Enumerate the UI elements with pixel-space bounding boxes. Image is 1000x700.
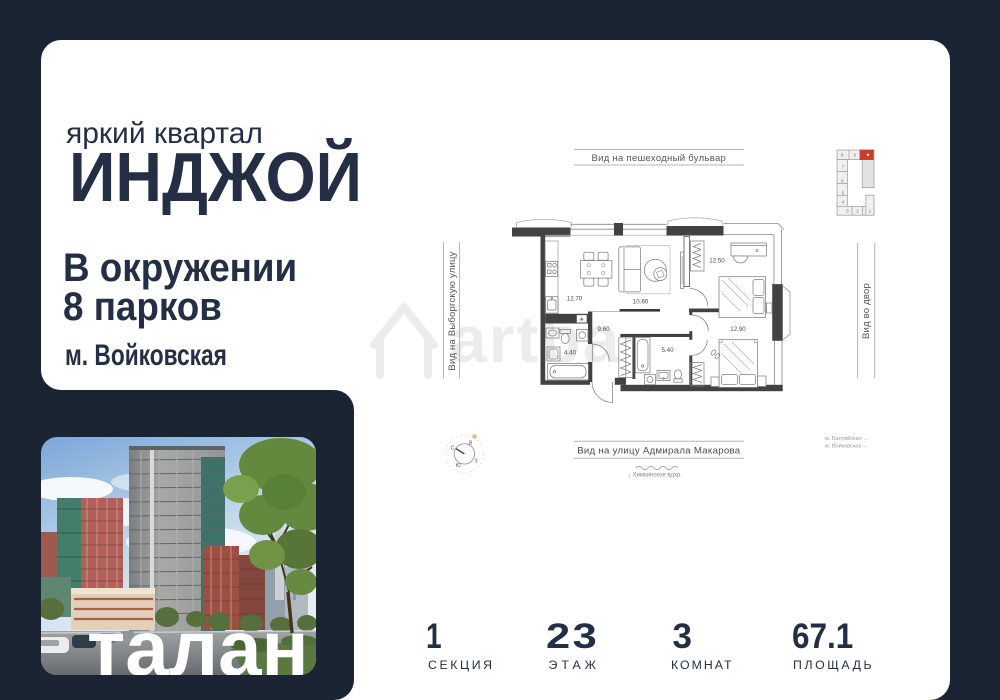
svg-text:В: В: [469, 441, 473, 447]
svg-text:✳: ✳: [579, 317, 584, 324]
svg-text:м. Войковская →: м. Войковская →: [825, 443, 868, 450]
svg-text:12.50: 12.50: [709, 258, 725, 265]
svg-text:м. Балтийская →: м. Балтийская →: [825, 435, 869, 442]
svg-text:Вид во двор: Вид во двор: [861, 283, 872, 339]
svg-text:↓ Химкинское вдхр.: ↓ Химкинское вдхр.: [628, 473, 682, 479]
svg-text:З: З: [474, 458, 477, 464]
svg-text:9.60: 9.60: [597, 326, 610, 333]
svg-text:Вид на Выборгскую улицу: Вид на Выборгскую улицу: [447, 251, 458, 370]
svg-text:Ю: Ю: [456, 463, 461, 469]
svg-text:Вид на пешеходный бульвар: Вид на пешеходный бульвар: [591, 153, 726, 164]
svg-text:12.70: 12.70: [567, 296, 583, 303]
svg-text:Вид на улицу Адмирала Макарова: Вид на улицу Адмирала Макарова: [577, 446, 741, 457]
svg-text:С: С: [451, 446, 455, 452]
svg-text:12.90: 12.90: [730, 326, 746, 333]
svg-text:10.60: 10.60: [633, 299, 649, 306]
svg-text:5.40: 5.40: [661, 347, 674, 354]
svg-text:4.40: 4.40: [564, 350, 577, 357]
